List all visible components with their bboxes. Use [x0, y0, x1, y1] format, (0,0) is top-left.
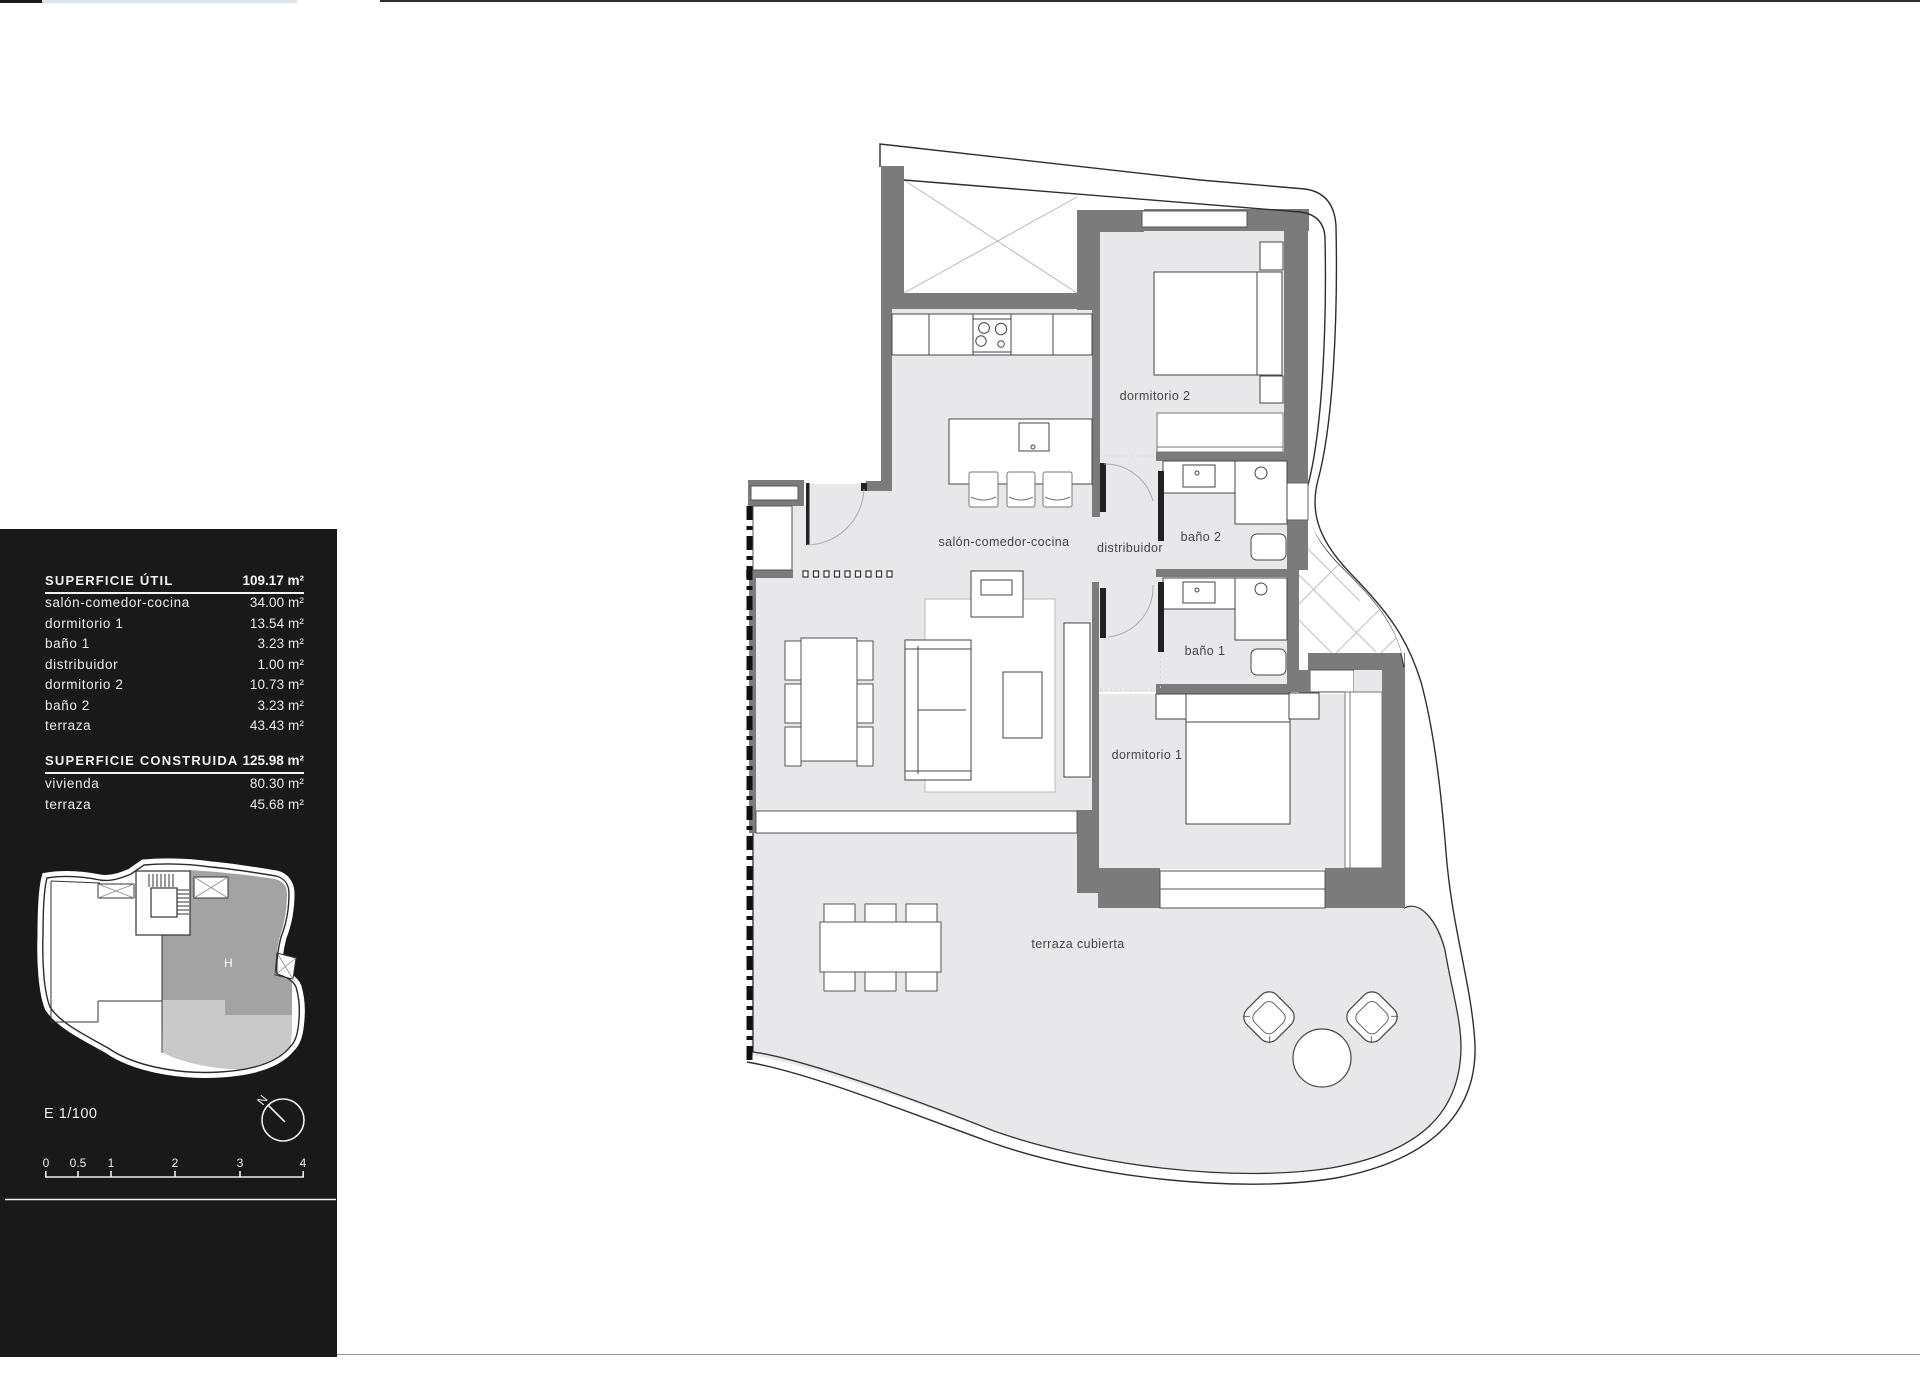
- svg-text:2: 2: [172, 1156, 179, 1170]
- svg-text:3: 3: [237, 1156, 244, 1170]
- svg-text:H: H: [224, 956, 233, 970]
- svg-text:baño 2: baño 2: [1181, 530, 1222, 544]
- svg-text:1: 1: [108, 1156, 115, 1170]
- svg-text:distribuidor: distribuidor: [1097, 541, 1163, 555]
- svg-text:baño 1: baño 1: [1185, 644, 1226, 658]
- svg-text:0.5: 0.5: [70, 1156, 87, 1170]
- svg-text:salón-comedor-cocina: salón-comedor-cocina: [939, 535, 1070, 549]
- svg-text:dormitorio 2: dormitorio 2: [1120, 389, 1191, 403]
- svg-text:terraza cubierta: terraza cubierta: [1031, 937, 1124, 951]
- svg-text:dormitorio 1: dormitorio 1: [1112, 748, 1183, 762]
- svg-text:E 1/100: E 1/100: [44, 1106, 98, 1122]
- svg-text:4: 4: [300, 1156, 307, 1170]
- svg-text:0: 0: [43, 1156, 50, 1170]
